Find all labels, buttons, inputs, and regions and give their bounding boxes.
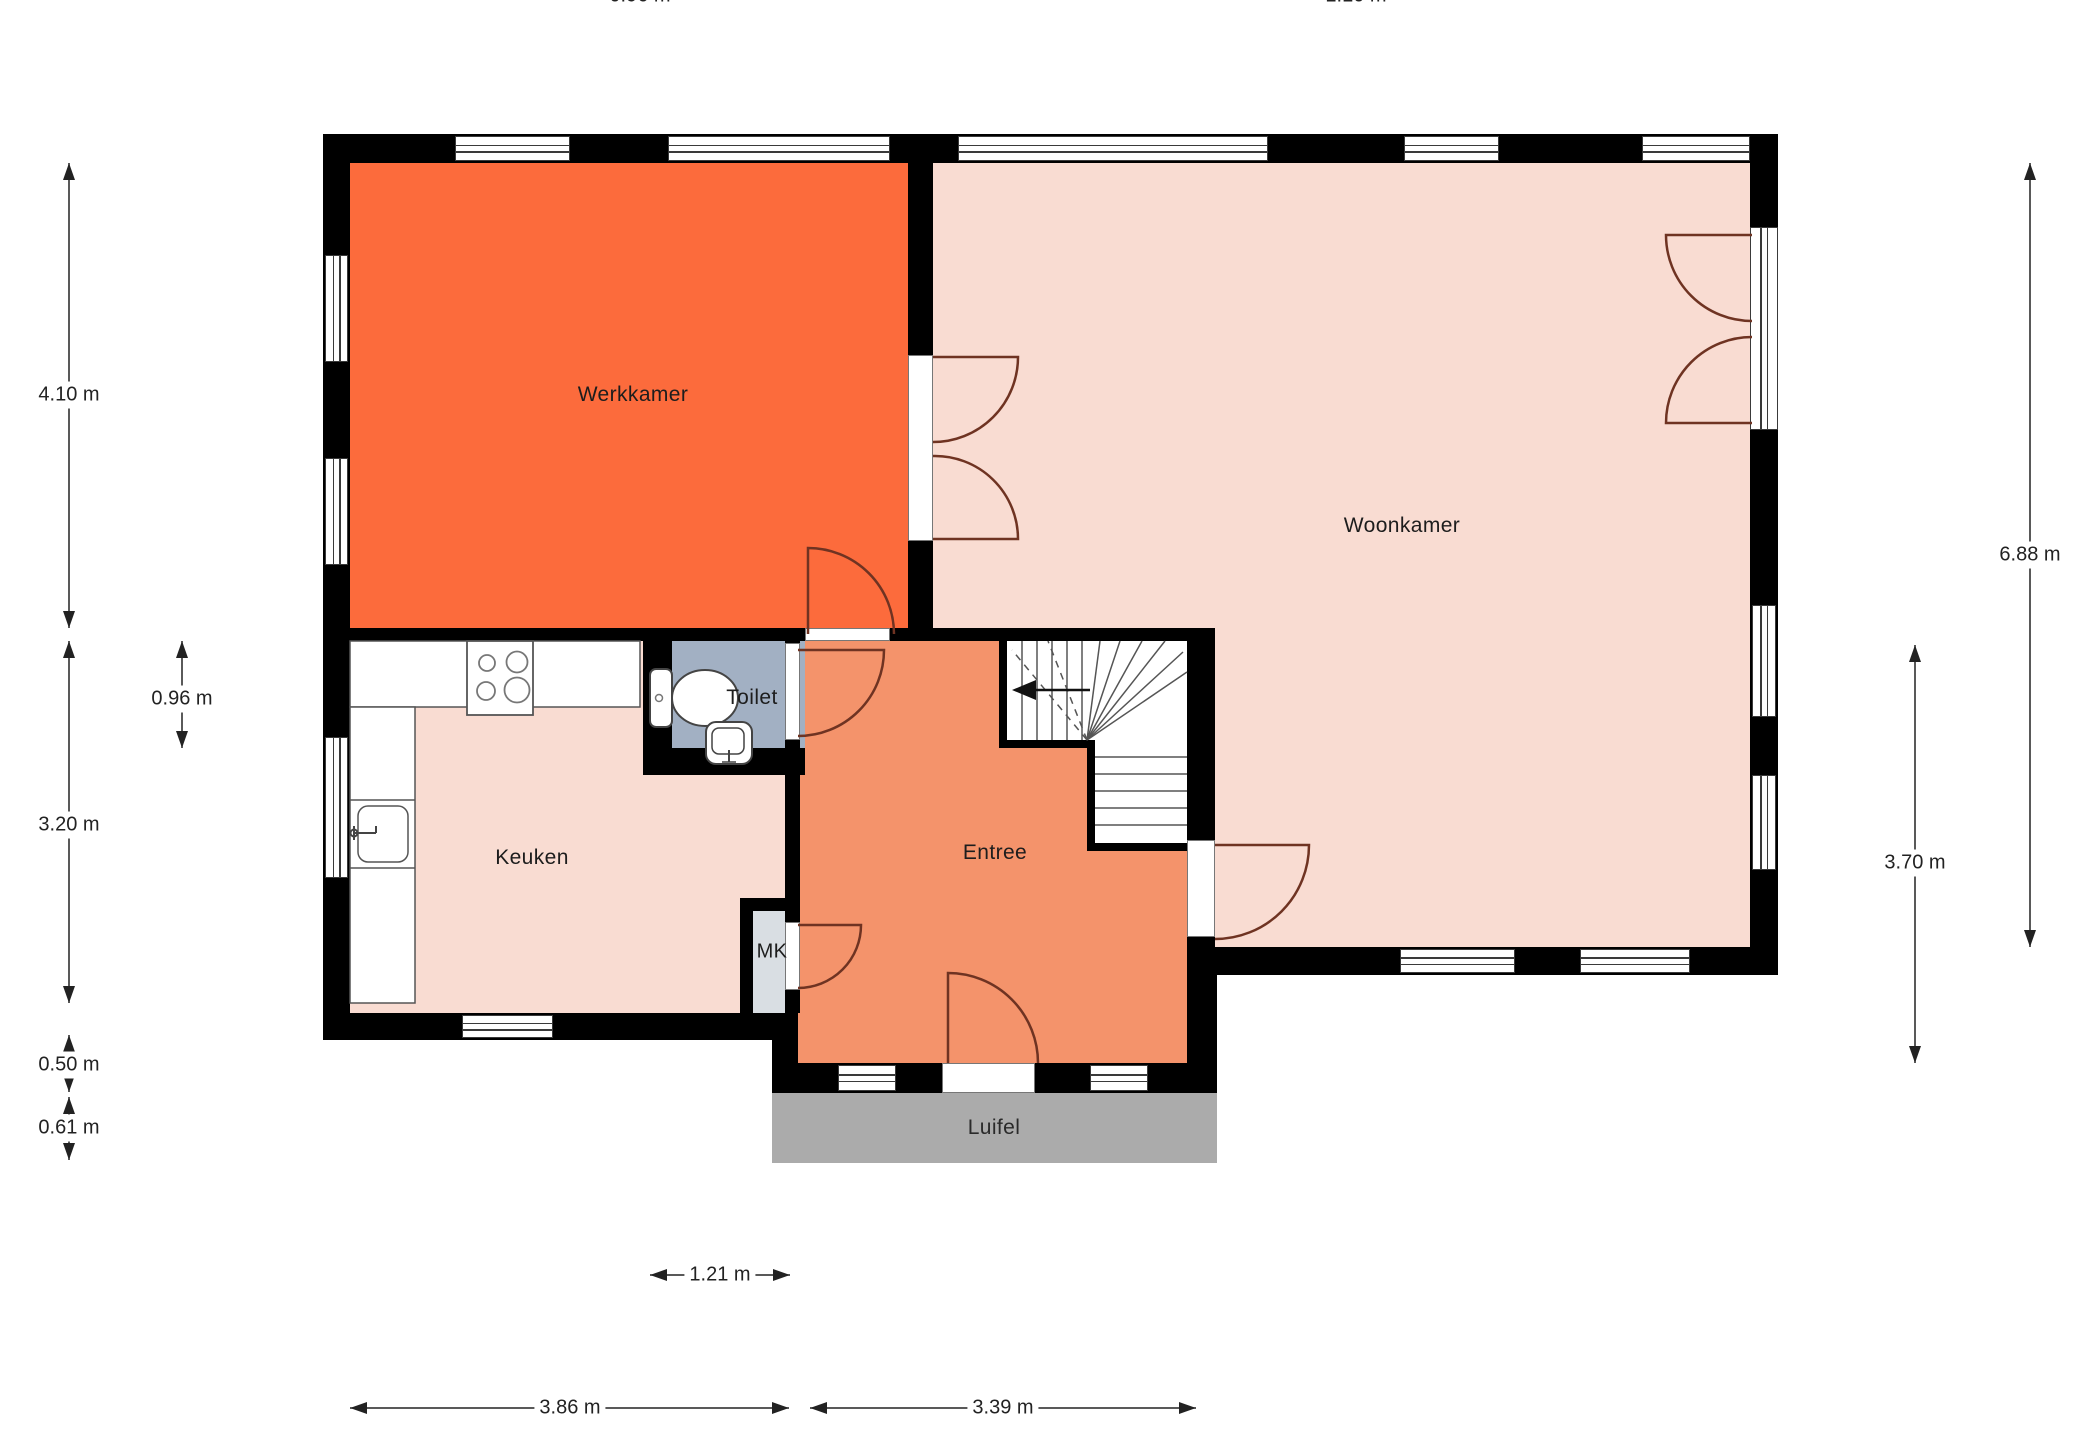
opening-woonkamer-door [1187,840,1215,937]
stairs-edge-left [999,641,1007,740]
dimension-top-1: 0.96 m [604,0,675,10]
opening-toilet-door [785,643,800,740]
stairs-edge-bottom [1087,843,1187,851]
room-label-toilet: Toilet [726,686,777,710]
floor-plan-page: { "plan": { "rooms": { "werkkamer": {"la… [0,0,2100,1440]
room-label-luifel: Luifel [968,1116,1021,1140]
window-right-1 [1752,605,1776,717]
window-woonkamer-bottom-1 [1400,949,1515,973]
wall-entree-lower-right [1187,947,1217,1093]
room-label-entree: Entree [963,841,1027,865]
dimension-left-2: 0.96 m [146,686,217,713]
room-woonkamer [933,163,1750,628]
window-top-1 [455,136,570,161]
window-entree-bottom-2 [1090,1065,1148,1091]
dimension-right-2: 3.70 m [1879,850,1950,877]
wall-mk-left [740,898,753,1013]
opening-werkkamer-door [805,628,890,641]
stairs-edge-lower-left [1087,740,1095,851]
window-left-1 [325,255,348,362]
window-top-5 [1642,136,1750,161]
dimension-left-5: 0.61 m [33,1115,104,1142]
window-top-2 [668,136,890,161]
stairs-area-lower [1087,740,1187,843]
wall-toilet-left [643,641,672,757]
room-woonkamer-lower [1215,628,1750,947]
dimension-left-4: 0.50 m [33,1052,104,1079]
stairs-edge-mid [999,740,1095,748]
window-top-3 [958,136,1268,161]
window-kitchen-bottom [462,1015,553,1038]
room-label-woonkamer: Woonkamer [1344,514,1460,538]
opening-double-door [908,355,933,541]
wall-toilet-bottom [643,748,805,775]
room-label-keuken: Keuken [495,846,569,870]
french-door-frame [1750,227,1778,430]
window-left-2 [325,458,348,565]
room-label-werkkamer: Werkkamer [578,383,689,407]
dimension-bottom-3: 3.39 m [967,1395,1038,1422]
wall-interior-horizontal [350,628,1215,641]
dimension-left-1: 4.10 m [33,382,104,409]
window-right-2 [1752,775,1776,870]
dimension-right-1: 6.88 m [1994,542,2065,569]
window-woonkamer-bottom-2 [1580,949,1690,973]
dimension-top-2: 1.10 m [1320,0,1391,10]
wall-kitchen-bottom [323,1013,798,1040]
window-top-4 [1404,136,1499,161]
dimension-left-3: 3.20 m [33,812,104,839]
stairs-area-upper [1007,641,1187,740]
window-left-3 [325,737,348,878]
window-entree-bottom-1 [838,1065,896,1091]
dimension-bottom-1: 1.21 m [684,1262,755,1289]
dimension-bottom-2: 3.86 m [534,1395,605,1422]
room-label-mk: MK [757,941,788,964]
opening-front-door [942,1063,1035,1093]
